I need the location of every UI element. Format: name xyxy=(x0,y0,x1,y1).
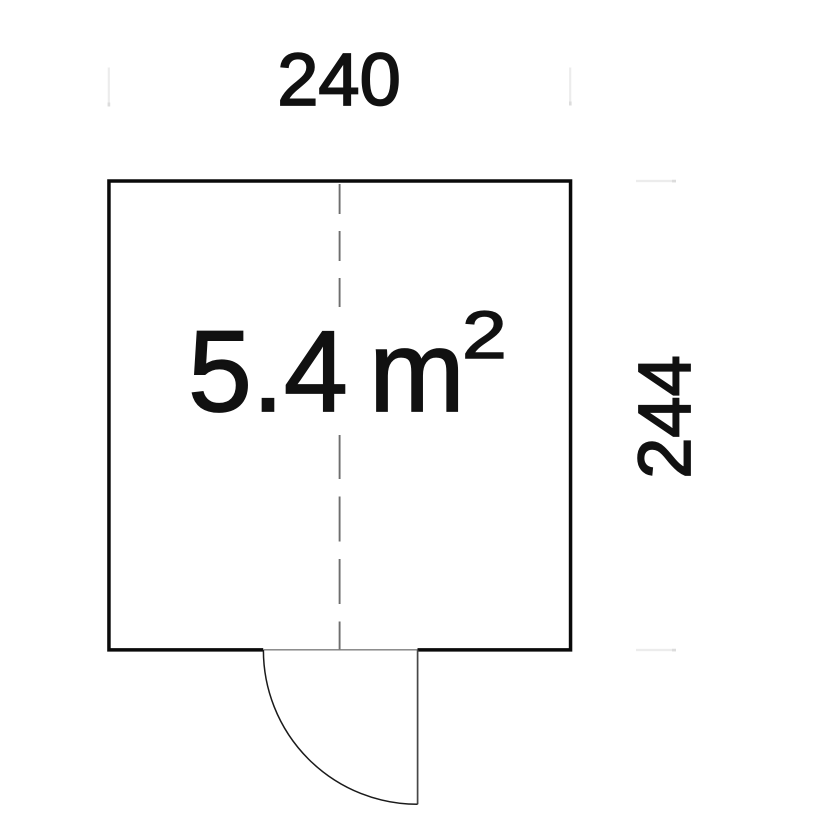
svg-text:2: 2 xyxy=(462,297,507,372)
svg-text:m: m xyxy=(369,308,465,436)
svg-text:244: 244 xyxy=(623,355,706,478)
svg-text:240: 240 xyxy=(277,38,400,121)
svg-text:5.4: 5.4 xyxy=(188,308,348,436)
